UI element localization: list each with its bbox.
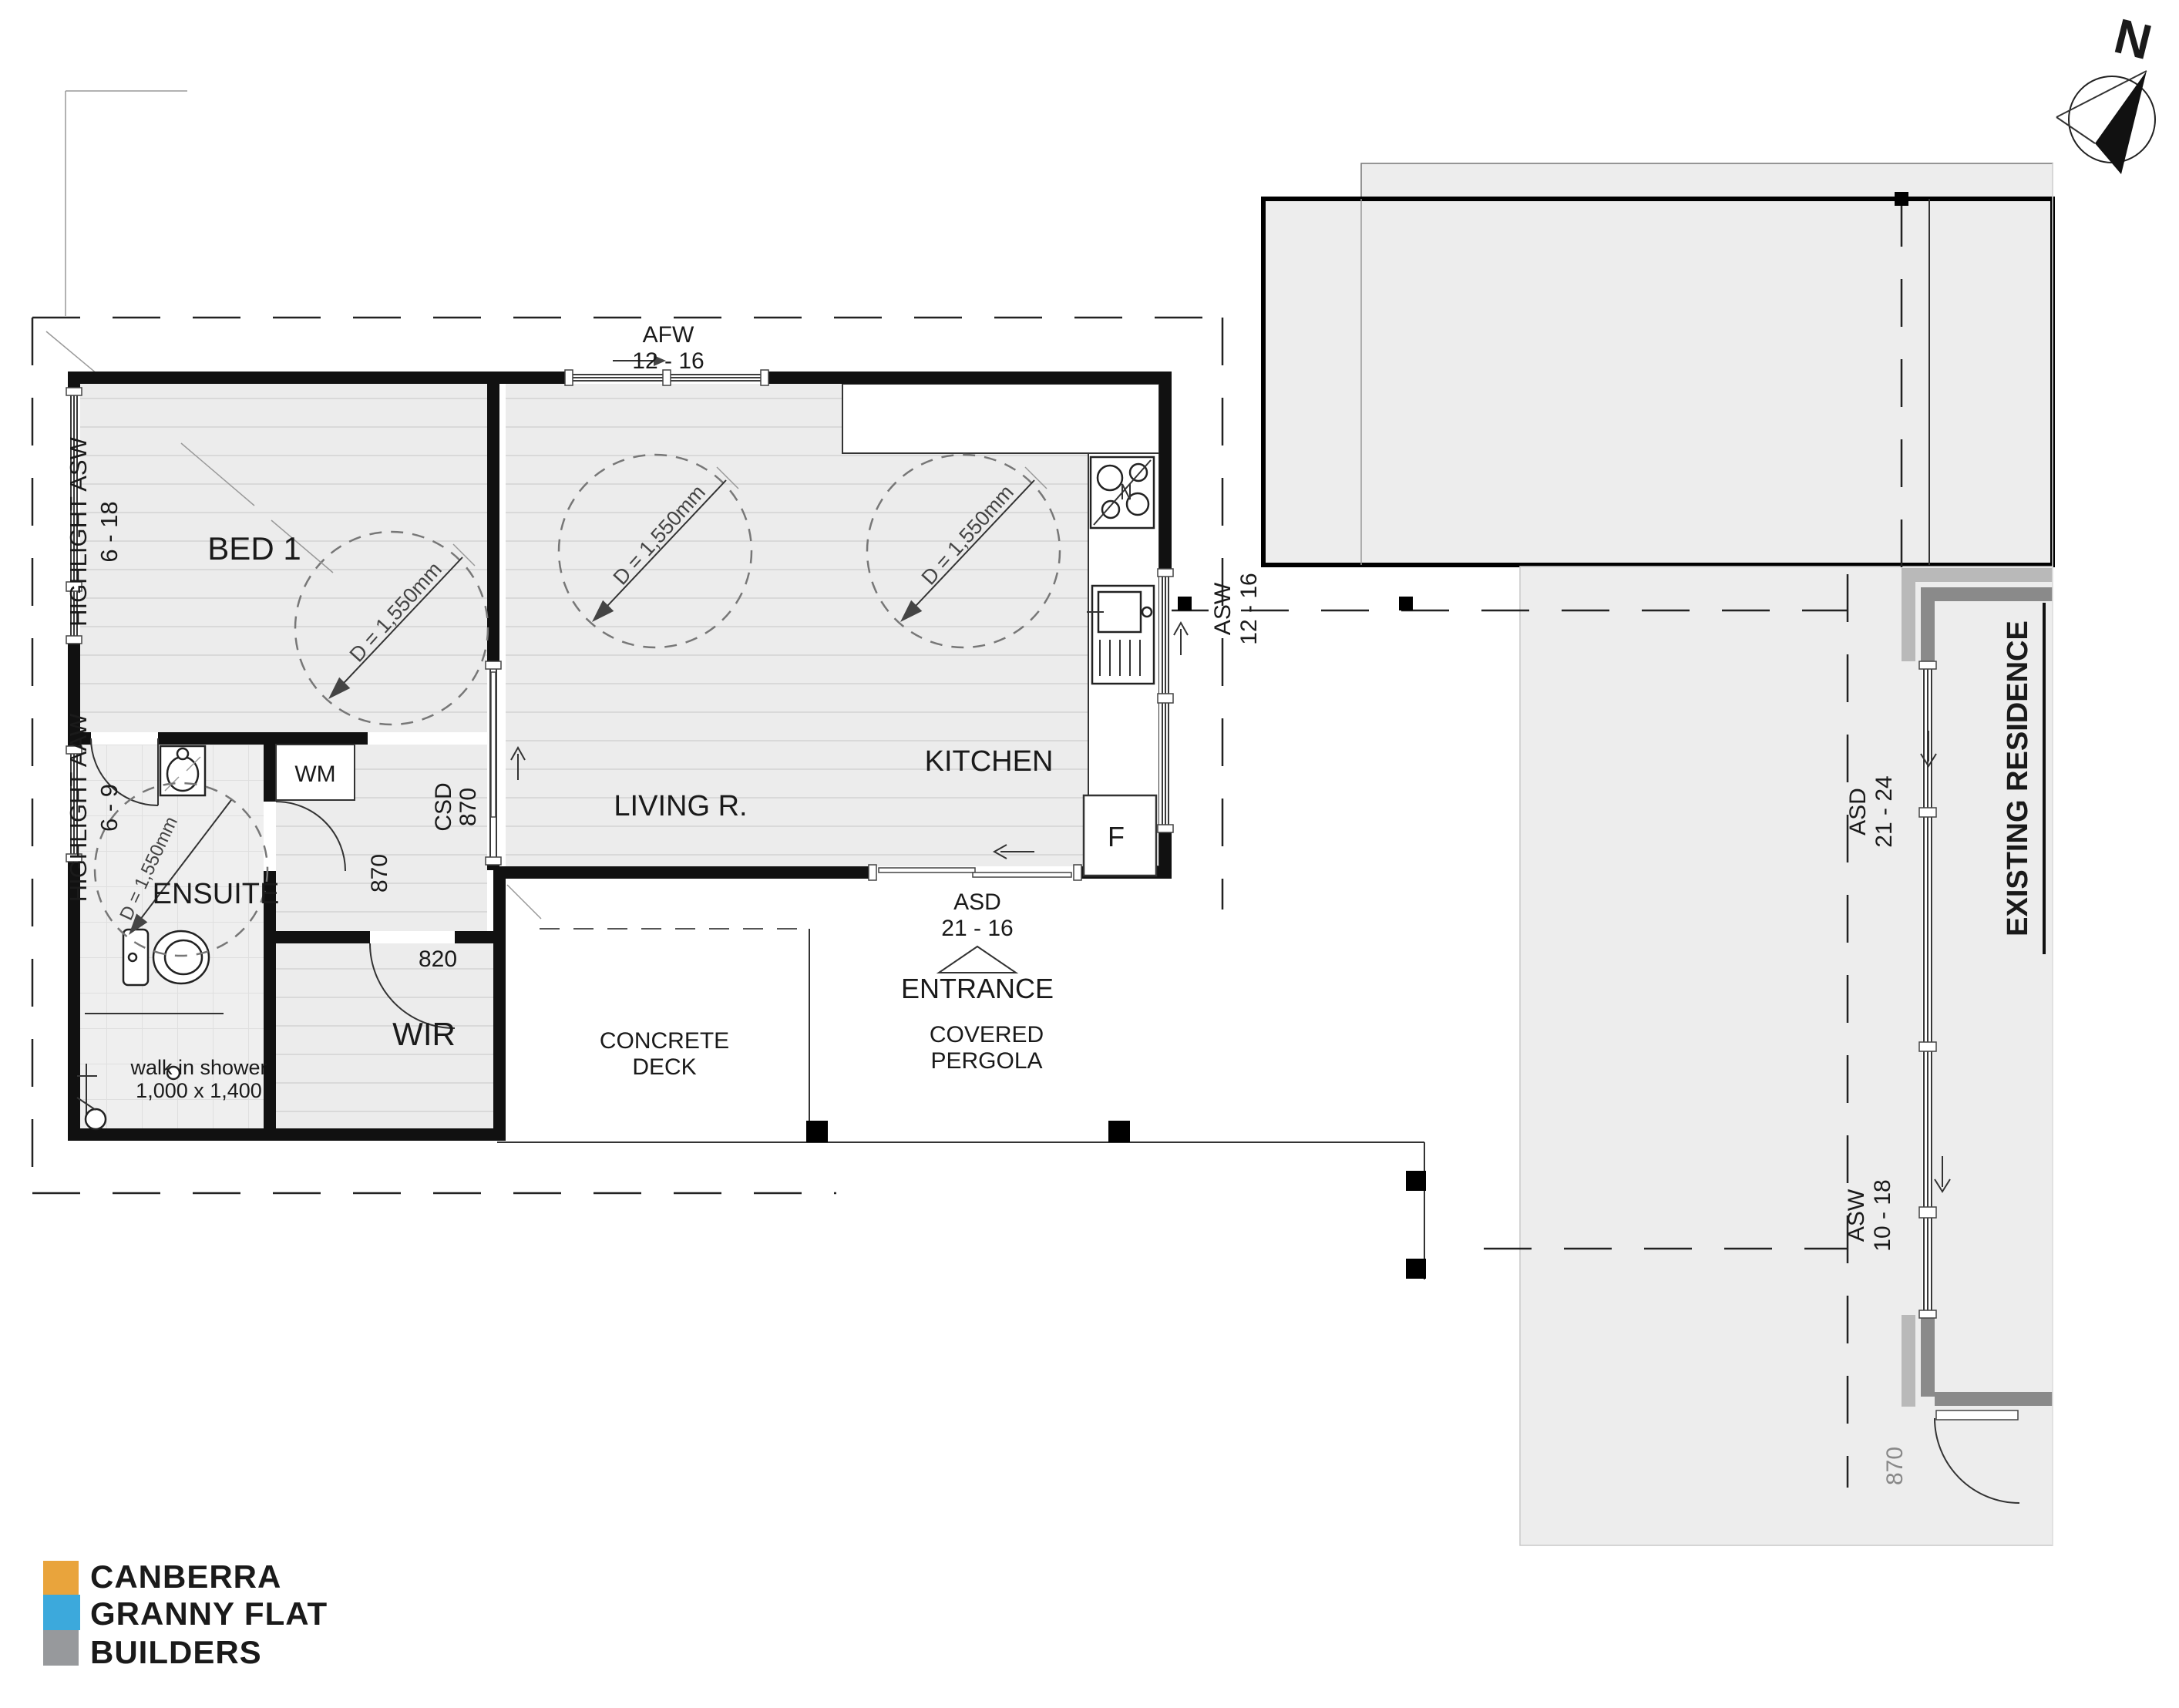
residence-door-size: 870: [1882, 1447, 1908, 1485]
north-compass: N: [2056, 8, 2157, 174]
pergola-post: [1178, 597, 1192, 610]
residence-asd-code: ASD: [1845, 788, 1871, 836]
compass-needle: [2095, 71, 2147, 174]
ensuite-label: ENSUITE: [153, 878, 280, 910]
residence-wall: [1921, 601, 1935, 664]
kitchen-asw-code: ASW: [1210, 582, 1236, 635]
logo-line1: CANBERRA: [90, 1558, 281, 1595]
pergola-post: [1895, 192, 1908, 206]
highlight-asw-size: 6 - 18: [96, 501, 123, 562]
asd-entry-code: ASD: [953, 889, 1001, 915]
logo-square-gray: [43, 1630, 79, 1666]
asd-entry-size: 21 - 16: [941, 916, 1013, 941]
pergola-post: [1399, 597, 1413, 610]
csd-door: [486, 661, 501, 865]
stove-cooktop: [1091, 457, 1154, 528]
residence-wall: [1902, 1315, 1915, 1407]
kitchen-asw-size: 12 - 16: [1236, 573, 1262, 644]
fridge-label: F: [1108, 821, 1125, 852]
wm-closet: WM: [276, 745, 355, 800]
hall-door-size: 870: [367, 854, 392, 893]
pergola-post: [1108, 1121, 1130, 1142]
residence-asw-size: 10 - 18: [1870, 1179, 1895, 1251]
pergola-post: [806, 1121, 828, 1142]
residence-wall: [1902, 568, 2053, 582]
existing-residence-label: EXISTING RESIDENCE: [2002, 620, 2034, 936]
afw-size: 12 - 16: [632, 348, 704, 374]
csd-code: CSD: [431, 782, 456, 831]
wir-label: WIR: [392, 1016, 456, 1052]
covered-pergola-label-2: PERGOLA: [930, 1048, 1042, 1074]
residence-wall: [1902, 568, 1915, 661]
entrance-marker: [939, 946, 1016, 973]
csd-size: 870: [456, 788, 481, 826]
existing-garage: [1263, 163, 2053, 565]
afw-code: AFW: [643, 322, 694, 348]
residence-wall: [1921, 1315, 1935, 1397]
concrete-deck-label-2: DECK: [632, 1054, 696, 1080]
wir-door-size: 820: [419, 946, 457, 972]
garage-outline: [1263, 199, 2053, 565]
kitchen-sink: [1087, 586, 1154, 684]
kitchen-window-arrow: [1174, 623, 1188, 655]
highlight-asw-code: HIGHLIGHT ASW: [65, 436, 92, 626]
highlight-aaw-size: 6 - 9: [96, 784, 123, 832]
residence-wall: [1921, 587, 2053, 601]
asd-entry-door: [869, 865, 1081, 880]
entrance-label: ENTRANCE: [901, 973, 1054, 1004]
residence-asd-size: 21 - 24: [1871, 775, 1897, 847]
kitchen-label: KITCHEN: [925, 745, 1054, 778]
logo-square-blue: [43, 1595, 80, 1630]
company-logo: CANBERRA GRANNY FLAT BUILDERS: [43, 1558, 328, 1670]
shower-size: 1,000 x 1,400: [136, 1079, 262, 1102]
highlight-aaw-code: HIGHLIGHT AAW: [65, 713, 92, 902]
floor-plan-page: ASD 21 - 24 ASW 10 - 18 EXISTING RESIDEN…: [0, 0, 2179, 1708]
garage-roof-strip: [1361, 163, 2053, 199]
covered-pergola-label-1: COVERED: [930, 1022, 1044, 1047]
living-label: LIVING R.: [614, 790, 747, 822]
toilet: [123, 930, 209, 985]
residence-wall: [1935, 1392, 2053, 1406]
shower-label: walk in shower: [129, 1056, 267, 1079]
wm-label: WM: [294, 762, 335, 787]
logo-line3: BUILDERS: [90, 1634, 262, 1670]
logo-square-orange: [43, 1561, 79, 1595]
floor-plan-drawing: ASD 21 - 24 ASW 10 - 18 EXISTING RESIDEN…: [0, 0, 2179, 1708]
pergola-post: [1406, 1171, 1426, 1191]
fridge: F: [1084, 795, 1156, 876]
bed1-label: BED 1: [207, 530, 301, 567]
pergola-post: [1406, 1259, 1426, 1279]
concrete-deck-label-1: CONCRETE: [600, 1028, 729, 1054]
logo-line2: GRANNY FLAT: [90, 1595, 328, 1632]
kitchen-asw-window: [1158, 569, 1173, 832]
ensuite-sink: [160, 746, 205, 795]
north-label: N: [2109, 8, 2157, 70]
